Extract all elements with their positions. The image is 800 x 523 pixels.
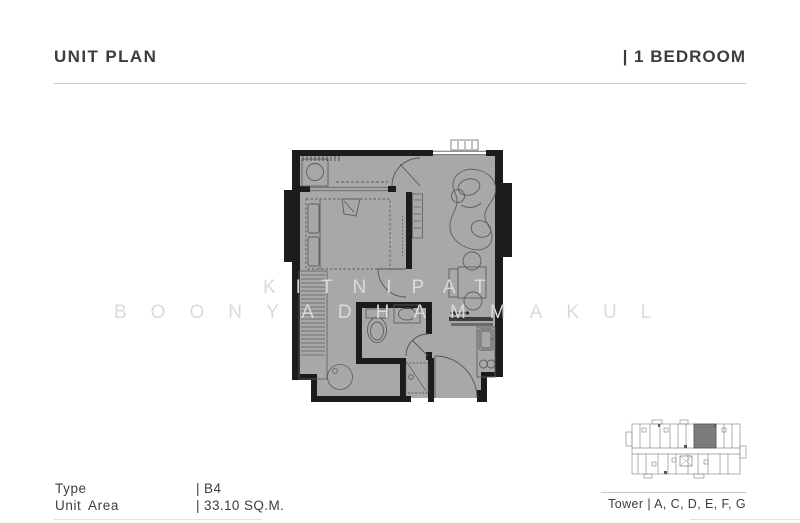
ac-unit bbox=[451, 140, 478, 150]
spec-area-label: Unit Area bbox=[55, 498, 119, 513]
unit-plan-page: UNIT PLAN | 1 BEDROOM bbox=[0, 0, 800, 523]
spec-area-value: | 33.10 SQ.M. bbox=[196, 498, 284, 513]
floor-plan-drawing bbox=[280, 136, 516, 406]
spec-type-label: Type bbox=[55, 481, 87, 496]
key-plan-divider bbox=[601, 492, 746, 493]
bottom-edge-right bbox=[690, 519, 800, 520]
key-plan-highlighted-unit bbox=[694, 424, 716, 448]
watermark-line-2: BOONYADHAMMAKUL bbox=[114, 302, 675, 324]
key-plan-drawing bbox=[624, 416, 748, 486]
unit-type-label: | 1 BEDROOM bbox=[623, 47, 746, 67]
watermark-line-1: KITNIPAT bbox=[263, 277, 506, 299]
bottom-edge-left bbox=[54, 519, 262, 520]
tower-label: Tower | A, C, D, E, F, G bbox=[608, 497, 746, 511]
spec-type-value: | B4 bbox=[196, 481, 221, 496]
page-title: UNIT PLAN bbox=[54, 47, 157, 67]
header-divider bbox=[54, 83, 746, 84]
